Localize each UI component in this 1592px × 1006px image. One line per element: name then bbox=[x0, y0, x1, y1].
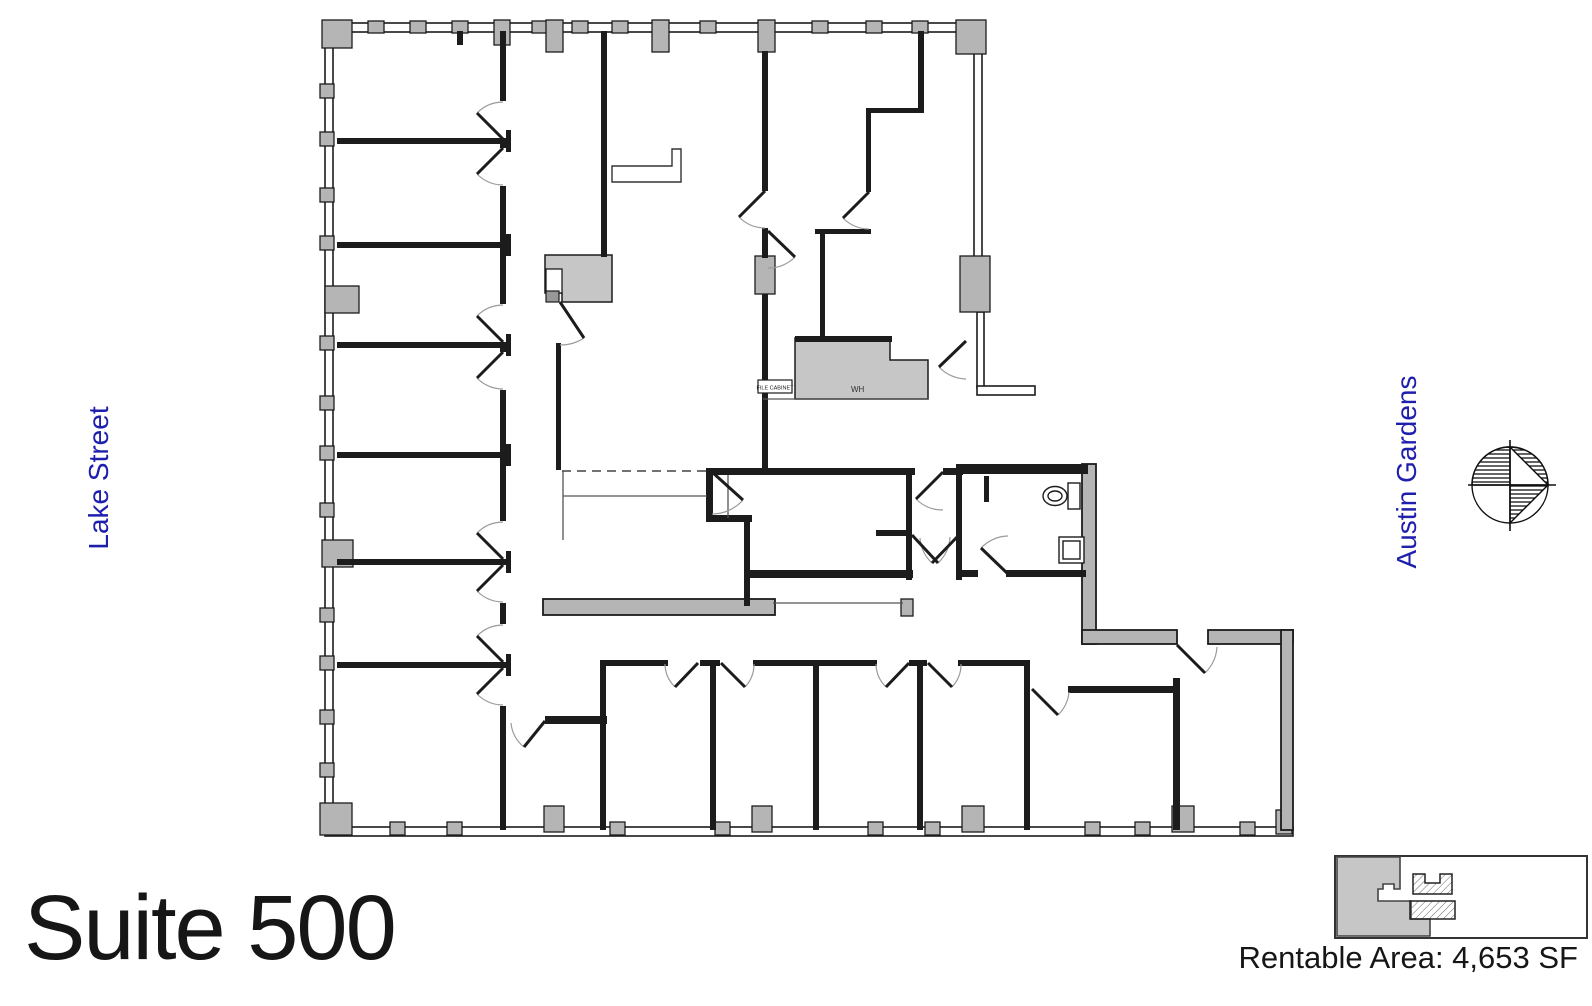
street-label-lake-street: Lake Street bbox=[83, 406, 115, 549]
kitchen-notch bbox=[546, 269, 562, 293]
north-arrow-icon bbox=[1468, 440, 1556, 531]
sink-icon bbox=[1059, 537, 1084, 563]
street-label-austin-gardens: Austin Gardens bbox=[1391, 376, 1423, 569]
door-leaves bbox=[477, 113, 1205, 747]
key-plan bbox=[1335, 856, 1587, 938]
water-heater-label: WH bbox=[851, 385, 865, 394]
page-title: Suite 500 bbox=[24, 876, 395, 981]
cabinet-label: FILE CABINET bbox=[757, 386, 795, 392]
door-arcs bbox=[477, 102, 1217, 747]
key-plan-core-lower bbox=[1410, 901, 1455, 919]
toilet-icon bbox=[1043, 483, 1080, 509]
floor-plan-page: FILE CABINET WH Suite 500 Rentable Area:… bbox=[0, 0, 1592, 1006]
kitchen-block bbox=[546, 291, 559, 302]
floor-plan-canvas: FILE CABINET WH bbox=[0, 0, 1592, 1006]
exterior-walls bbox=[325, 23, 1293, 836]
counter bbox=[612, 149, 681, 182]
rentable-area-label: Rentable Area: 4,653 SF bbox=[1238, 940, 1578, 976]
shaded-areas bbox=[545, 255, 928, 399]
